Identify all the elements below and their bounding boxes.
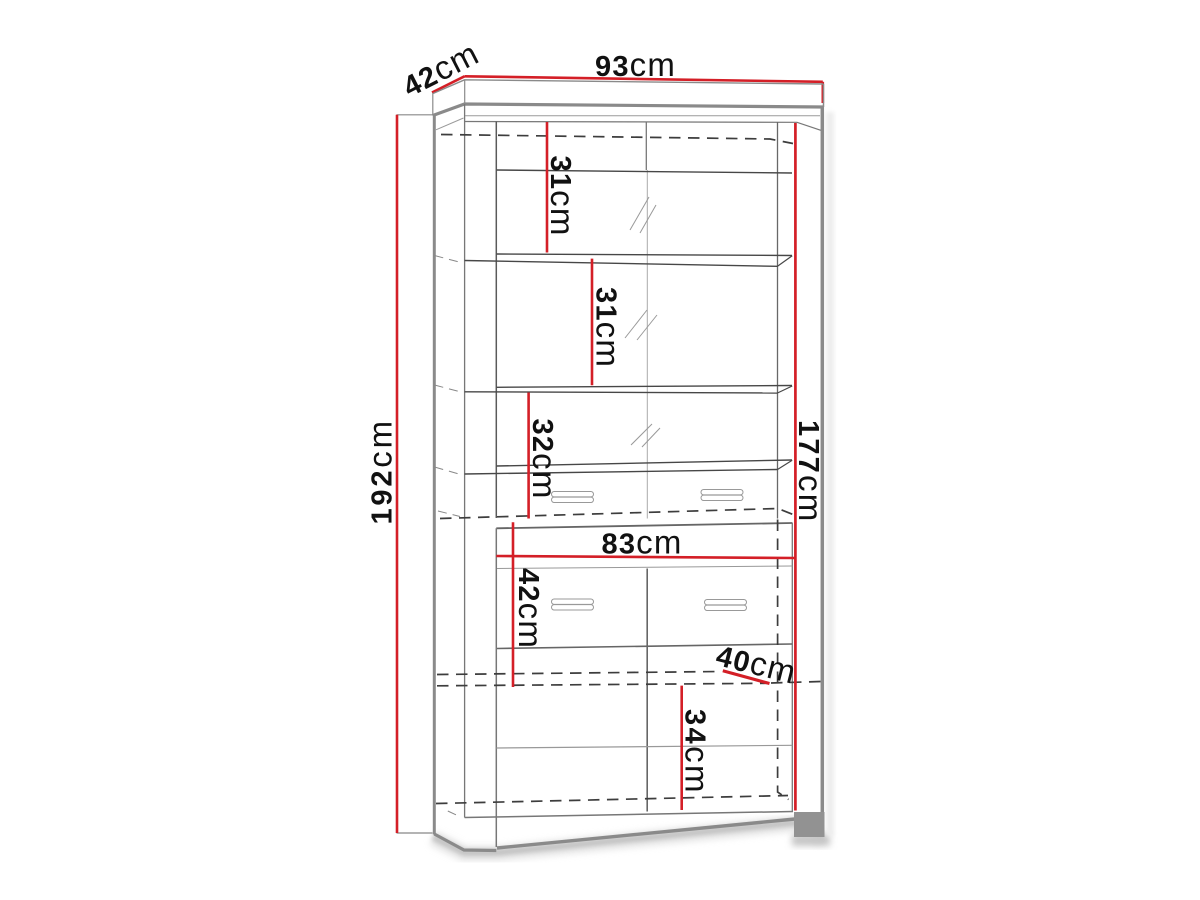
svg-text:32cm: 32cm xyxy=(526,419,563,500)
svg-text:31cm: 31cm xyxy=(544,156,581,237)
svg-text:83cm: 83cm xyxy=(602,524,683,561)
svg-text:192cm: 192cm xyxy=(362,418,399,524)
svg-text:34cm: 34cm xyxy=(679,709,716,795)
svg-text:93cm: 93cm xyxy=(595,46,676,83)
svg-text:177cm: 177cm xyxy=(792,420,829,523)
svg-text:42cm: 42cm xyxy=(512,568,549,649)
svg-text:42cm: 42cm xyxy=(396,34,485,104)
svg-text:31cm: 31cm xyxy=(590,287,627,368)
